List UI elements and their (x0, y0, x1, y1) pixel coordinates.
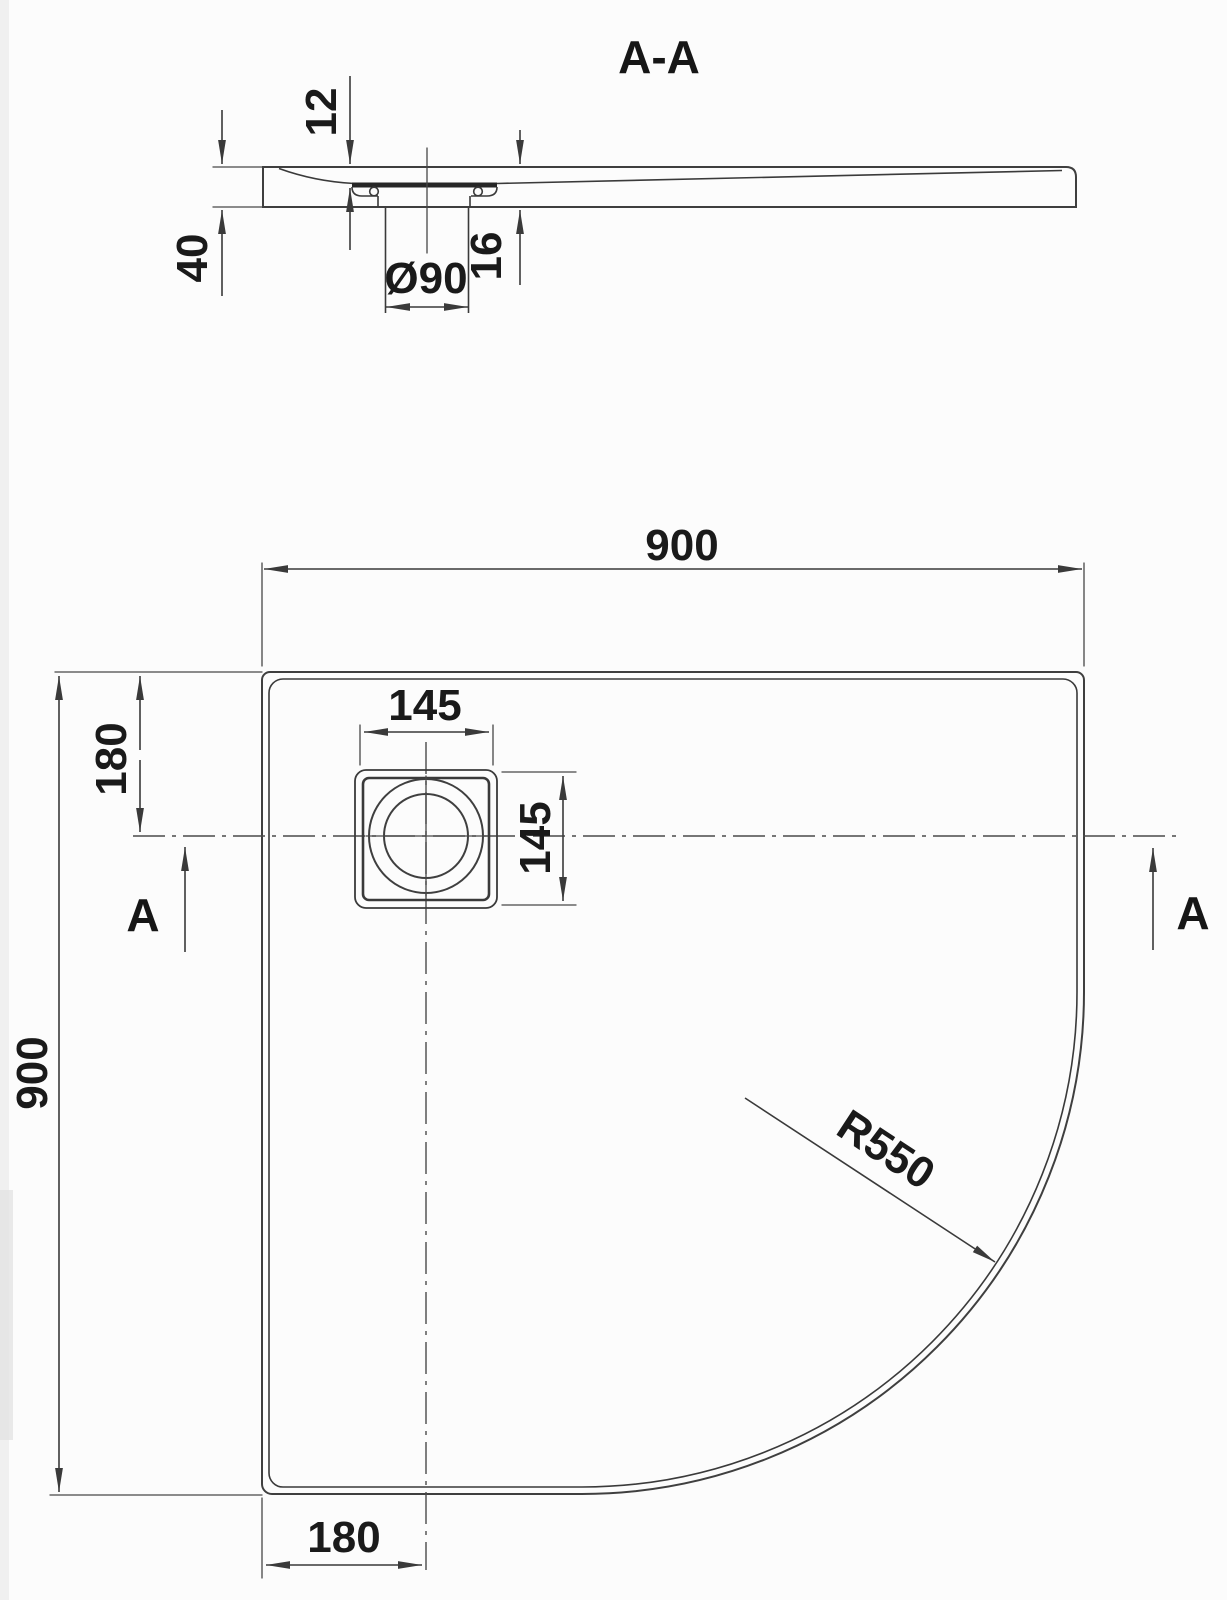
dim-label-145-top: 145 (388, 681, 461, 730)
extension-lines-left (213, 167, 264, 207)
section-marker-letter-left: A (126, 889, 159, 941)
section-marker-right: A (1153, 848, 1210, 950)
section-view: A-A 40 12 (168, 31, 1076, 313)
dim-label-180-bottom: 180 (307, 1513, 380, 1562)
dim-label-16: 16 (462, 232, 511, 281)
tray-rim-slope-line (279, 169, 354, 184)
dim-label-diameter-90: Ø90 (384, 254, 467, 303)
tray-floor-slope-line (497, 171, 1062, 184)
drain-flange-profile (352, 187, 497, 207)
dim-drain-offset-180-left: 180 (87, 676, 140, 832)
dim-drain-diameter-90: Ø90 (384, 254, 468, 307)
dim-label-145-right: 145 (511, 801, 560, 874)
dim-width-900-top: 900 (262, 521, 1084, 666)
section-marker-left: A (126, 847, 185, 952)
shower-tray-dimension-drawing: A-A 40 12 (0, 0, 1227, 1600)
dim-label-900-left: 900 (8, 1036, 57, 1109)
tray-plan-outline-inner (269, 679, 1077, 1487)
plan-view: 900 900 180 180 (8, 521, 1210, 1578)
dim-label-180-left: 180 (87, 722, 136, 795)
section-title: A-A (618, 31, 700, 83)
dim-label-r550: R550 (829, 1101, 944, 1200)
drain-crosshair (366, 776, 486, 896)
dim-label-12: 12 (297, 88, 346, 137)
dim-label-900-top: 900 (645, 521, 718, 570)
section-marker-letter-right: A (1176, 887, 1209, 939)
technical-drawing-page: A-A 40 12 (0, 0, 1227, 1600)
dim-label-40: 40 (168, 234, 217, 283)
dim-total-height-40: 40 (168, 110, 222, 296)
drain-clip-left (370, 187, 379, 196)
dim-drain-box-145-right: 145 (502, 772, 576, 905)
dim-drain-offset-180-bottom: 180 (262, 1498, 422, 1578)
dim-corner-radius-r550: R550 (745, 1098, 995, 1262)
drain-clip-right (474, 187, 483, 196)
drain-assembly-plan (355, 770, 497, 908)
dim-rim-thickness-12: 12 (297, 76, 350, 250)
